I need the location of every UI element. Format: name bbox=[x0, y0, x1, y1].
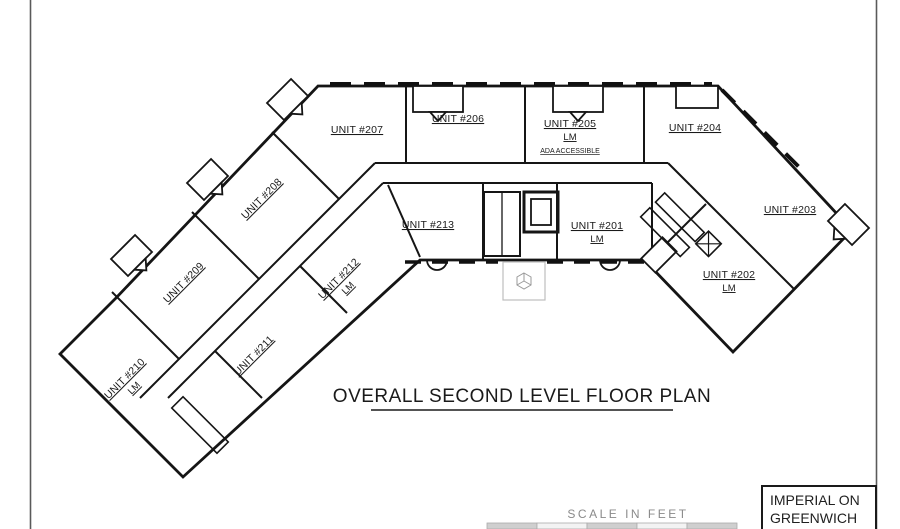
unit-label-group-209: UNIT #209 bbox=[161, 260, 207, 306]
unit-label-group-207: UNIT #207 bbox=[331, 124, 383, 136]
title-block-line2: GREENWICH bbox=[770, 510, 857, 526]
unit-label-211: UNIT #211 bbox=[231, 333, 276, 378]
unit-label-208: UNIT #208 bbox=[239, 176, 285, 222]
scale-bar bbox=[487, 523, 737, 529]
title-block-line1: IMPERIAL ON bbox=[770, 492, 860, 508]
unit-label-group-213: UNIT #213 bbox=[402, 219, 454, 231]
unit-label-group-201: UNIT #201LM bbox=[571, 220, 623, 245]
title-group: OVERALL SECOND LEVEL FLOOR PLAN bbox=[333, 386, 711, 410]
unit-label-202: UNIT #202 bbox=[703, 269, 755, 281]
plan-title: OVERALL SECOND LEVEL FLOOR PLAN bbox=[333, 386, 711, 407]
scale-group: SCALE IN FEET bbox=[487, 507, 737, 529]
center-stair bbox=[484, 192, 520, 256]
unit-label-group-204: UNIT #204 bbox=[669, 122, 721, 134]
unit-label-209: UNIT #209 bbox=[161, 260, 207, 306]
unit-label-210: UNIT #210 bbox=[102, 356, 148, 402]
unit-label-205: UNIT #205 bbox=[544, 118, 596, 130]
bay-windows bbox=[111, 79, 869, 282]
entry-vestibule bbox=[503, 262, 545, 300]
unit-label-207: UNIT #207 bbox=[331, 124, 383, 136]
unit-label-206: UNIT #206 bbox=[432, 113, 484, 125]
unit-label-group-203: UNIT #203 bbox=[764, 204, 816, 216]
unit-label-group-206: UNIT #206 bbox=[432, 113, 484, 125]
drawing-sheet: UNIT #207UNIT #206UNIT #205LMADA ACCESSI… bbox=[0, 0, 900, 529]
unit-sublabel-202-0: LM bbox=[722, 283, 735, 294]
unit-label-212: UNIT #212 bbox=[316, 256, 362, 302]
unit-sublabel-205-0: LM bbox=[563, 132, 576, 143]
unit-label-group-202: UNIT #202LM bbox=[703, 269, 755, 294]
unit-label-213: UNIT #213 bbox=[402, 219, 454, 231]
elevator bbox=[524, 192, 558, 232]
unit-label-203: UNIT #203 bbox=[764, 204, 816, 216]
survey-symbol bbox=[517, 273, 531, 289]
unit-label-group-208: UNIT #208 bbox=[239, 176, 285, 222]
title-block: IMPERIAL ON GREENWICH bbox=[762, 486, 876, 529]
floor-plan-svg: UNIT #207UNIT #206UNIT #205LMADA ACCESSI… bbox=[0, 0, 900, 529]
unit-sublabel-201-0: LM bbox=[590, 234, 603, 245]
unit-label-201: UNIT #201 bbox=[571, 220, 623, 232]
unit-label-group-205: UNIT #205LMADA ACCESSIBLE bbox=[540, 118, 600, 155]
unit-label-group-211: UNIT #211 bbox=[231, 333, 276, 378]
scale-label: SCALE IN FEET bbox=[567, 507, 688, 521]
unit-sublabel-205-1: ADA ACCESSIBLE bbox=[540, 148, 600, 155]
unit-label-group-212: UNIT #212LM bbox=[316, 256, 371, 311]
unit-label-204: UNIT #204 bbox=[669, 122, 721, 134]
